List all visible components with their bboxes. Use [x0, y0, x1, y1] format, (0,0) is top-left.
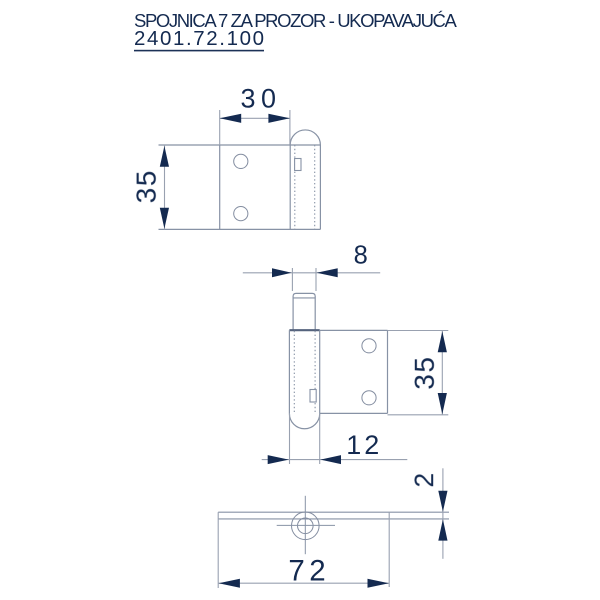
svg-text:35: 35 — [409, 356, 440, 390]
svg-text:2: 2 — [409, 473, 439, 488]
svg-text:30: 30 — [240, 84, 281, 114]
svg-text:72: 72 — [288, 555, 330, 588]
svg-text:35: 35 — [131, 169, 162, 203]
svg-text:8: 8 — [354, 242, 368, 270]
svg-text:2401.72.100: 2401.72.100 — [134, 27, 266, 50]
svg-text:12: 12 — [346, 430, 382, 460]
